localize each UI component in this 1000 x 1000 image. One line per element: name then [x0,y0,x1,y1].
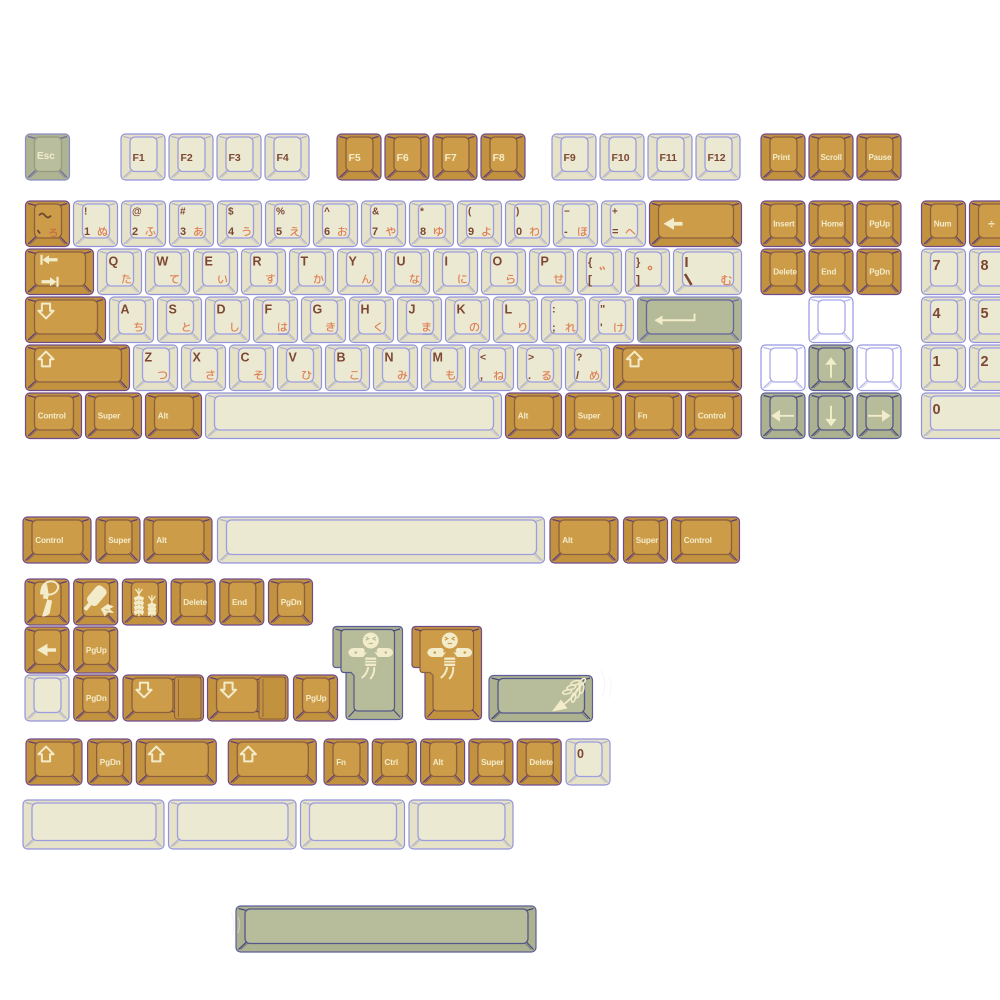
svg-text:N: N [385,351,394,365]
svg-text:5: 5 [276,226,282,238]
svg-text:5: 5 [981,306,989,322]
svg-text:Delete: Delete [773,268,797,277]
svg-text:^: ^ [324,207,330,218]
svg-text:#: # [180,207,186,218]
svg-text:7: 7 [933,258,941,274]
svg-text:PgUp: PgUp [869,220,890,229]
svg-text:PgUp: PgUp [86,646,107,655]
svg-text:P: P [541,255,549,269]
svg-text:U: U [397,255,406,269]
svg-text:Control: Control [684,536,712,545]
svg-text:PgDn: PgDn [86,694,107,703]
svg-text:F5: F5 [349,152,361,164]
svg-text:Q: Q [109,255,119,269]
svg-text:+: + [612,207,618,218]
svg-text:Z: Z [145,351,153,365]
svg-text:Super: Super [98,412,121,421]
svg-text:/: / [576,370,579,382]
svg-text:': ' [600,322,603,334]
svg-text:W: W [157,255,169,269]
svg-text:PgDn: PgDn [869,268,890,277]
svg-text:Pause: Pause [869,153,893,162]
svg-text:0: 0 [577,747,584,761]
svg-text:F12: F12 [708,152,726,164]
svg-text:F9: F9 [564,152,576,164]
svg-text:End: End [232,598,247,607]
svg-text:H: H [361,303,370,317]
svg-text:F4: F4 [277,152,289,164]
svg-text:Control: Control [698,412,726,421]
svg-text:Super: Super [481,758,504,767]
svg-text:Ctrl: Ctrl [385,758,399,767]
svg-text:4: 4 [933,306,941,322]
svg-text:,: , [480,370,483,382]
svg-text:8: 8 [981,258,989,274]
svg-text:F7: F7 [445,152,457,164]
svg-text:Control: Control [35,536,63,545]
svg-text:Control: Control [38,412,66,421]
svg-text:Alt: Alt [562,536,573,545]
svg-text:X: X [193,351,202,365]
svg-text:Print: Print [773,153,791,162]
svg-text:C: C [241,351,250,365]
svg-text:T: T [301,255,309,269]
svg-text:2: 2 [132,226,138,238]
svg-text:PgUp: PgUp [306,694,327,703]
svg-text:{: { [588,257,593,269]
svg-text:K: K [457,303,466,317]
svg-text:%: % [276,207,285,218]
svg-text:÷: ÷ [988,217,995,231]
svg-text:F2: F2 [181,152,193,164]
svg-text:[: [ [588,273,592,287]
svg-text:Super: Super [636,536,659,545]
svg-text:F10: F10 [612,152,630,164]
svg-text:F: F [265,303,273,317]
svg-text:J: J [409,303,416,317]
svg-text:=: = [612,226,618,238]
svg-text:F6: F6 [397,152,409,164]
svg-text:4: 4 [228,226,235,238]
svg-text:3: 3 [180,226,186,238]
svg-text:9: 9 [468,226,474,238]
svg-text:End: End [821,268,836,277]
svg-text:Fn: Fn [336,758,346,767]
svg-text:.: . [528,370,531,382]
svg-text:M: M [433,351,443,365]
svg-text:8: 8 [420,226,426,238]
svg-text:Y: Y [349,255,358,269]
svg-text:B: B [337,351,346,365]
svg-text:Super: Super [108,536,131,545]
svg-text:): ) [516,207,519,218]
svg-text:2: 2 [981,354,989,370]
svg-text:A: A [121,303,130,317]
svg-text:F11: F11 [660,152,678,164]
svg-text:-: - [564,226,568,238]
svg-text:S: S [169,303,177,317]
svg-text:7: 7 [372,226,378,238]
svg-text:O: O [493,255,503,269]
svg-text:V: V [289,351,298,365]
svg-text:Delete: Delete [529,758,553,767]
svg-text:*: * [420,207,424,218]
svg-text:D: D [217,303,226,317]
svg-text:Esc: Esc [37,151,55,162]
svg-text:L: L [505,303,513,317]
svg-text:Insert: Insert [773,220,795,229]
svg-text:0: 0 [933,402,941,418]
svg-text:]: ] [636,273,640,287]
svg-text:;: ; [552,322,556,334]
svg-text:Super: Super [578,412,601,421]
svg-text:Alt: Alt [156,536,167,545]
svg-text:Alt: Alt [158,412,169,421]
svg-text:F3: F3 [229,152,241,164]
svg-text:I: I [445,255,448,269]
svg-text:<: < [480,352,486,364]
svg-text:PgDn: PgDn [100,758,121,767]
svg-text:E: E [205,255,213,269]
svg-text:": " [600,304,605,316]
svg-text:&: & [372,207,379,218]
svg-text:Scroll: Scroll [821,153,842,162]
svg-text:6: 6 [324,226,330,238]
svg-text:Fn: Fn [638,412,648,421]
svg-text:Home: Home [821,220,844,229]
svg-text:!: ! [84,207,87,218]
svg-text:0: 0 [516,226,522,238]
svg-text:?: ? [576,352,582,364]
svg-text:G: G [313,303,323,317]
svg-text:>: > [528,352,534,364]
svg-text:PgDn: PgDn [281,598,302,607]
svg-text:Alt: Alt [433,758,444,767]
svg-text:−: − [564,207,570,218]
svg-text:Num: Num [934,220,952,229]
svg-text:@: @ [132,207,142,218]
svg-text:Alt: Alt [518,412,529,421]
svg-text:F1: F1 [133,152,145,164]
svg-text:1: 1 [933,354,941,370]
svg-text:R: R [253,255,262,269]
svg-text:F8: F8 [493,152,505,164]
svg-text:$: $ [228,207,234,218]
svg-text:1: 1 [84,226,90,238]
svg-text:}: } [636,257,641,269]
svg-text:Delete: Delete [183,598,207,607]
svg-text::: : [552,304,556,316]
